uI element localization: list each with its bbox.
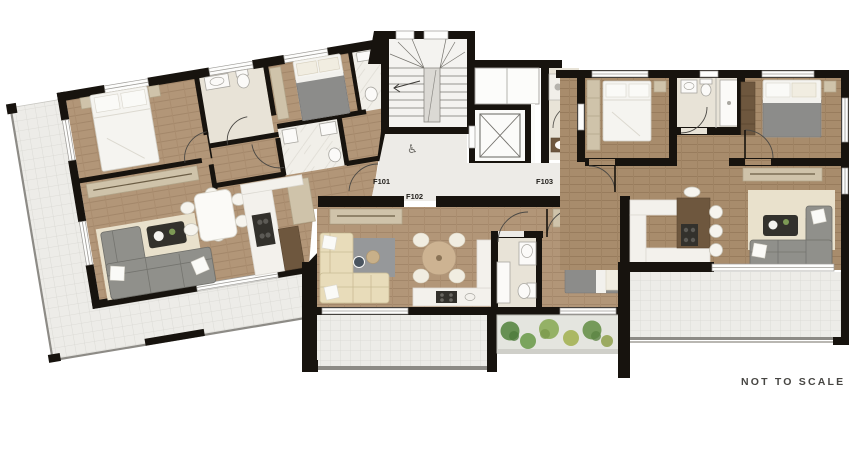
coffee-table bbox=[763, 215, 798, 236]
balcony-f103 bbox=[618, 262, 849, 378]
side-table bbox=[367, 251, 380, 264]
not-to-scale-note: NOT TO SCALE bbox=[741, 376, 845, 388]
toilet bbox=[701, 84, 711, 96]
sink bbox=[319, 121, 337, 135]
toilet bbox=[518, 284, 530, 299]
shower bbox=[497, 262, 510, 303]
label-unit-f101: F101 bbox=[373, 177, 390, 186]
ensuite-door-gap bbox=[578, 104, 584, 130]
floor-plan-drawing: ♿ F101 F102 F103 bbox=[0, 0, 866, 449]
wardrobe bbox=[587, 80, 600, 150]
label-unit-f102: F102 bbox=[406, 192, 423, 201]
wardrobe bbox=[741, 82, 755, 135]
planter-f102 bbox=[497, 315, 619, 354]
wheelchair-icon: ♿ bbox=[407, 142, 418, 156]
floor-plan-canvas: ♿ F101 F102 F103 bbox=[0, 0, 866, 449]
sink bbox=[681, 80, 697, 93]
label-unit-f103: F103 bbox=[536, 177, 553, 186]
elevator bbox=[469, 104, 531, 167]
cooktop bbox=[681, 224, 698, 246]
side-table bbox=[354, 257, 365, 268]
balcony-f102 bbox=[302, 307, 497, 372]
living-f103 bbox=[748, 190, 835, 268]
cooktop bbox=[436, 291, 457, 303]
